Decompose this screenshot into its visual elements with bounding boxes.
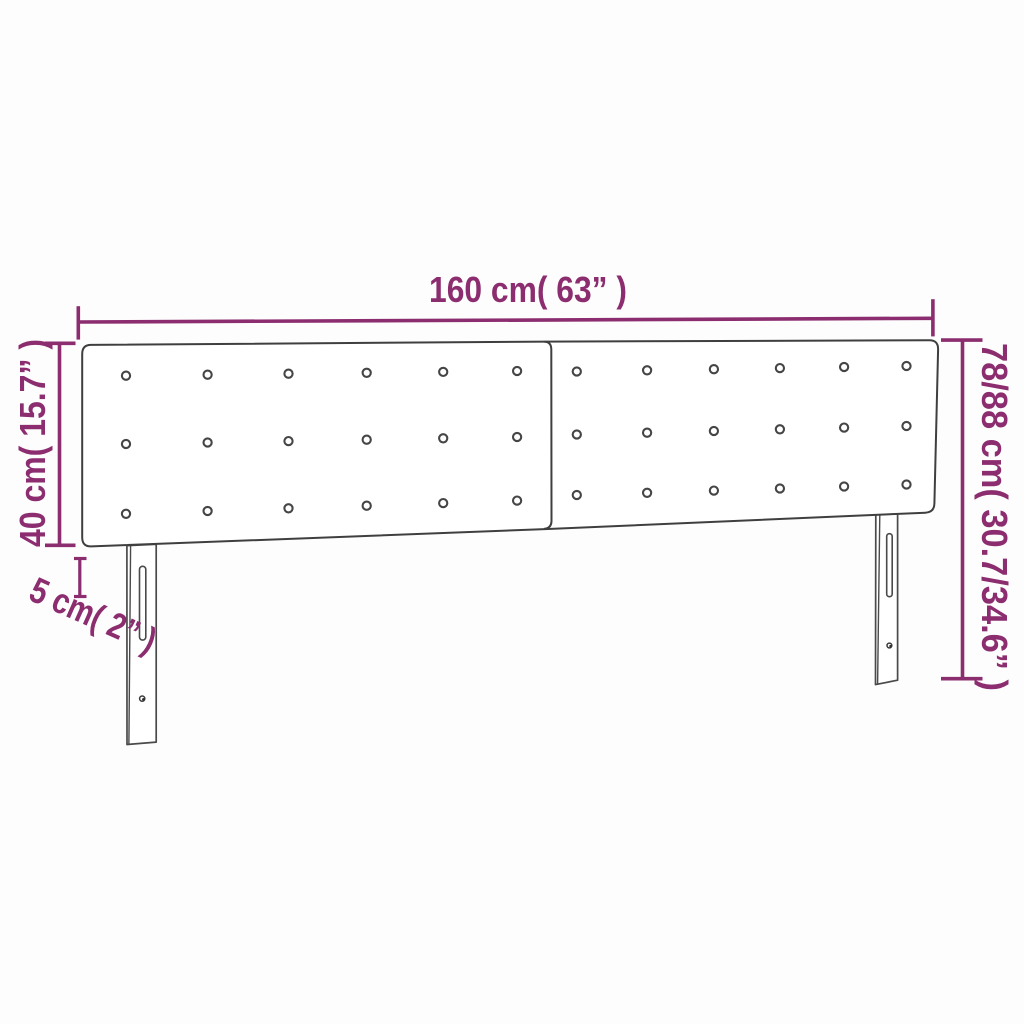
svg-text:160 cm( 63” ): 160 cm( 63” ) [429,269,627,310]
svg-text:40 cm( 15.7” ): 40 cm( 15.7” ) [12,339,53,547]
svg-text:78/88 cm( 30.7/34.6” ): 78/88 cm( 30.7/34.6” ) [974,343,1015,691]
